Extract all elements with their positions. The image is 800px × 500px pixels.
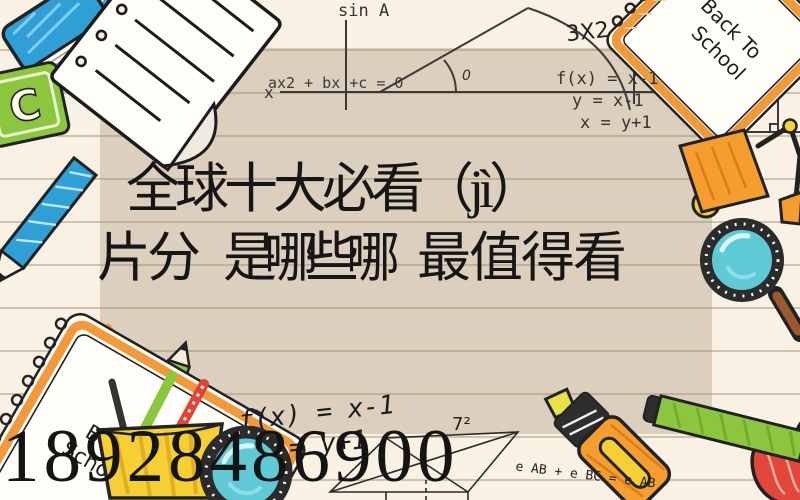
title-line2-part1: 片分 bbox=[97, 228, 197, 288]
quadratic-formula: ax2 + bx +c = 0 bbox=[268, 74, 403, 92]
angle-label: 0 bbox=[462, 68, 471, 84]
page-title-line1: 全球十大必看（jì） bbox=[126, 162, 538, 216]
fx-formulas: f(x) = x-1 y = x-1 x = y+1 bbox=[556, 68, 658, 134]
page-title-line2: 片分是哪些哪最值得看 bbox=[97, 231, 625, 285]
magnifier-icon bbox=[698, 212, 800, 352]
cube-label: 3X2 bbox=[565, 18, 610, 47]
fx-line-3: x = y+1 bbox=[580, 112, 658, 134]
title-line2-part2: 是哪些哪 bbox=[223, 228, 387, 288]
fx-line-2: y = x-1 bbox=[572, 90, 658, 112]
sin-label: sin A bbox=[338, 1, 389, 21]
back-to-school-banner: C bbox=[0, 0, 800, 500]
fx-line-1: f(x) = x-1 bbox=[556, 68, 658, 90]
title-line2-part3: 最值得看 bbox=[417, 228, 625, 288]
phone-number: 18928486900 bbox=[2, 414, 459, 500]
